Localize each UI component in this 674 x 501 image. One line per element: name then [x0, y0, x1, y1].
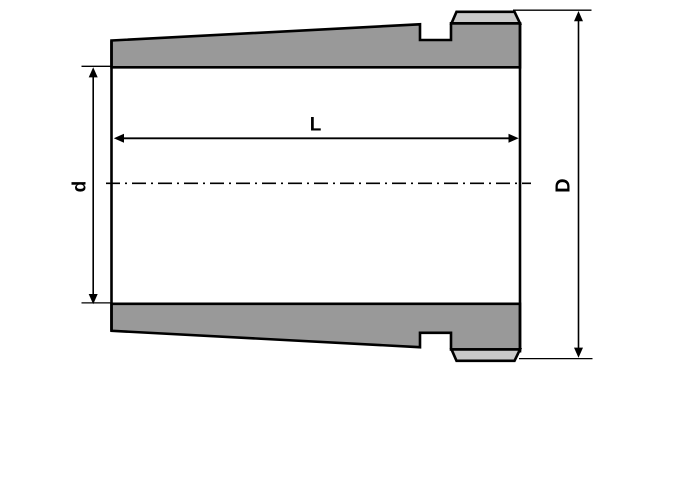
- svg-text:D: D: [553, 178, 575, 192]
- svg-text:L: L: [310, 115, 322, 136]
- svg-text:d: d: [70, 181, 91, 193]
